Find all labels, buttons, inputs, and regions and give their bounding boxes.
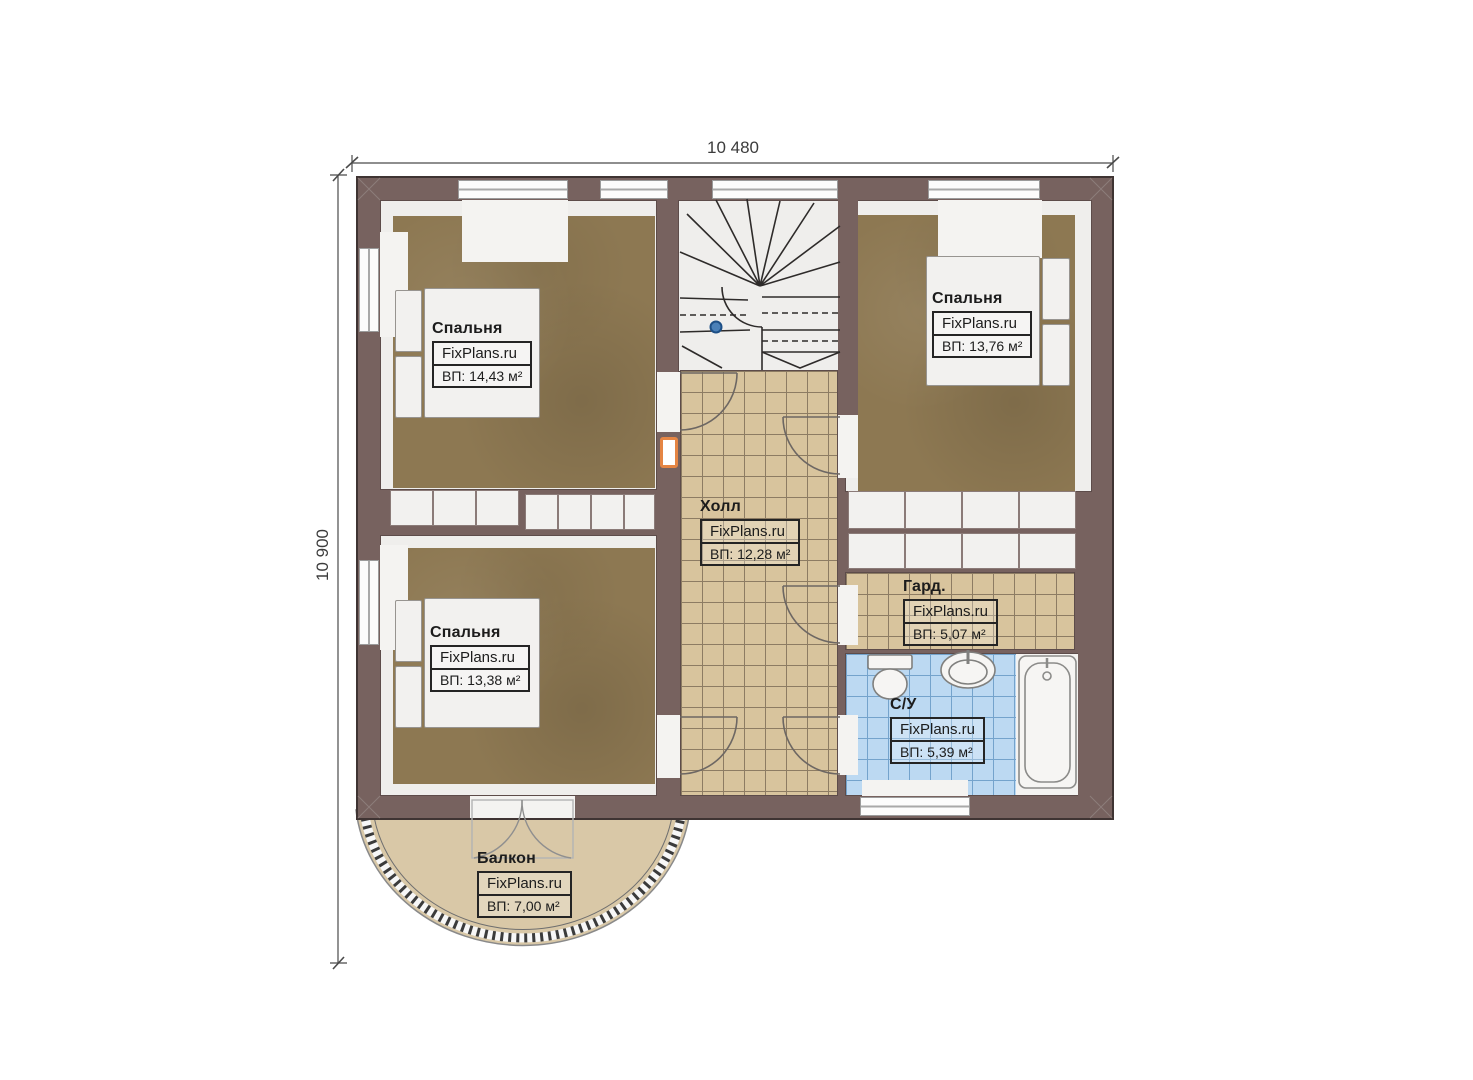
- watermark-box: FixPlans.ru ВП: 12,28 м²: [700, 519, 800, 566]
- brand-watermark: FixPlans.ru: [434, 343, 530, 364]
- window: [458, 180, 568, 199]
- room-name: Балкон: [477, 850, 572, 868]
- bathtub-zone: [1016, 654, 1078, 795]
- brand-watermark: FixPlans.ru: [432, 647, 528, 668]
- nightstand: [395, 356, 422, 418]
- label-bathroom: С/У FixPlans.ru ВП: 5,39 м²: [890, 696, 985, 764]
- brand-watermark: FixPlans.ru: [702, 521, 798, 542]
- door-opening-bedroom-bottom-left: [657, 715, 680, 778]
- window: [712, 180, 838, 199]
- watermark-box: FixPlans.ru ВП: 13,38 м²: [430, 645, 530, 692]
- label-bedroom-top-right: Спальня FixPlans.ru ВП: 13,76 м²: [932, 290, 1032, 358]
- watermark-box: FixPlans.ru ВП: 14,43 м²: [432, 341, 532, 388]
- closet-cell: [476, 490, 519, 526]
- window: [359, 560, 379, 645]
- dimension-top-label: 10 480: [688, 138, 778, 158]
- closet-cell: [848, 491, 905, 529]
- radiator-icon: [660, 437, 678, 468]
- nightstand: [1042, 258, 1070, 320]
- window-niche: [462, 200, 568, 262]
- brand-watermark: FixPlans.ru: [905, 601, 996, 622]
- room-name: Гард.: [903, 578, 998, 596]
- room-area: ВП: 12,28 м²: [702, 542, 798, 564]
- closet-cell: [1019, 491, 1076, 529]
- room-name: Холл: [700, 498, 800, 516]
- door-opening-bathroom: [838, 715, 858, 775]
- label-balcony: Балкон FixPlans.ru ВП: 7,00 м²: [477, 850, 572, 918]
- door-opening-wardrobe: [838, 585, 858, 645]
- closet-cell: [848, 533, 905, 569]
- floor-hall: [680, 370, 838, 796]
- door-opening-bedroom-top-left: [657, 372, 680, 432]
- room-area: ВП: 13,76 м²: [934, 334, 1030, 356]
- nightstand: [395, 600, 422, 662]
- closet-cell: [433, 490, 476, 526]
- room-area: ВП: 5,39 м²: [892, 740, 983, 762]
- watermark-box: FixPlans.ru ВП: 5,39 м²: [890, 717, 985, 764]
- balcony-door-opening: [470, 796, 575, 818]
- room-area: ВП: 5,07 м²: [905, 622, 996, 644]
- brand-watermark: FixPlans.ru: [479, 873, 570, 894]
- nightstand: [395, 290, 422, 352]
- floor-plan-canvas: 10 480 10 900 Спальня FixPlans.ru ВП: 14…: [0, 0, 1473, 1080]
- nightstand: [1042, 324, 1070, 386]
- closet-cell: [558, 494, 591, 530]
- closet-cell: [591, 494, 624, 530]
- wall-hall-bedroom2: [838, 200, 858, 415]
- door-opening-bedroom-top-right: [838, 415, 858, 478]
- closet-cell: [962, 491, 1019, 529]
- window: [359, 248, 379, 332]
- label-bedroom-bottom-left: Спальня FixPlans.ru ВП: 13,38 м²: [430, 624, 530, 692]
- room-area: ВП: 7,00 м²: [479, 894, 570, 916]
- closet-cell: [390, 490, 433, 526]
- room-name: Спальня: [932, 290, 1032, 308]
- stairwell: [678, 200, 842, 372]
- window: [860, 797, 970, 816]
- room-name: Спальня: [432, 320, 532, 338]
- label-bedroom-top-left: Спальня FixPlans.ru ВП: 14,43 м²: [432, 320, 532, 388]
- label-wardrobe: Гард. FixPlans.ru ВП: 5,07 м²: [903, 578, 998, 646]
- closet-cell: [962, 533, 1019, 569]
- dimension-left-label: 10 900: [313, 520, 333, 590]
- window: [928, 180, 1040, 199]
- closet-cell: [1019, 533, 1076, 569]
- brand-watermark: FixPlans.ru: [934, 313, 1030, 334]
- window-niche: [938, 200, 1042, 258]
- closet-cell: [525, 494, 558, 530]
- room-name: Спальня: [430, 624, 530, 642]
- room-area: ВП: 13,38 м²: [432, 668, 528, 690]
- brand-watermark: FixPlans.ru: [892, 719, 983, 740]
- watermark-box: FixPlans.ru ВП: 5,07 м²: [903, 599, 998, 646]
- window-niche: [862, 780, 968, 796]
- closet-cell: [624, 494, 655, 530]
- closet-cell: [905, 491, 962, 529]
- nightstand: [395, 666, 422, 728]
- watermark-box: FixPlans.ru ВП: 7,00 м²: [477, 871, 572, 918]
- watermark-box: FixPlans.ru ВП: 13,76 м²: [932, 311, 1032, 358]
- room-name: С/У: [890, 696, 985, 714]
- closet-cell: [905, 533, 962, 569]
- room-area: ВП: 14,43 м²: [434, 364, 530, 386]
- window: [600, 180, 668, 199]
- label-hall: Холл FixPlans.ru ВП: 12,28 м²: [700, 498, 800, 566]
